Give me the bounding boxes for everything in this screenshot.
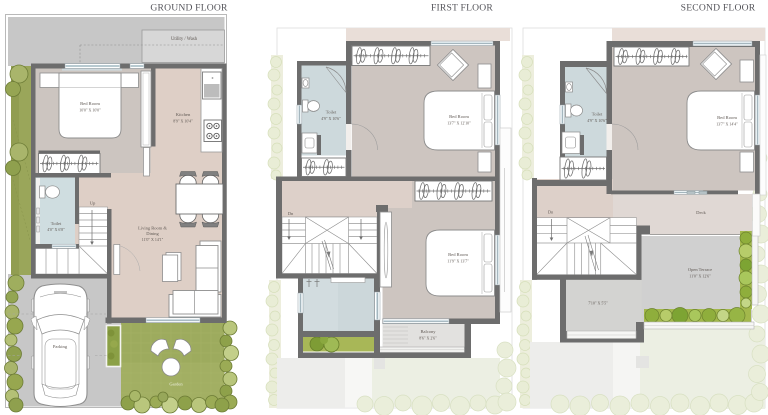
svg-text:GROUND FLOOR: GROUND FLOOR <box>150 3 228 14</box>
svg-text:Balcony: Balcony <box>421 329 437 334</box>
svg-text:Open Terrace: Open Terrace <box>688 267 712 272</box>
svg-text:Kitchen: Kitchen <box>176 112 191 117</box>
svg-text:Garden: Garden <box>169 382 183 387</box>
svg-text:Utility / Wash: Utility / Wash <box>171 37 198 42</box>
svg-text:Dn: Dn <box>288 211 294 216</box>
svg-text:11'9" X 13'7": 11'9" X 13'7" <box>447 259 469 264</box>
svg-text:Toilet: Toilet <box>51 221 62 226</box>
svg-text:Up: Up <box>90 201 96 206</box>
svg-text:7'10" X 5'5": 7'10" X 5'5" <box>588 301 608 306</box>
svg-text:Toilet: Toilet <box>592 112 603 117</box>
svg-text:Bed Room: Bed Room <box>717 115 737 120</box>
svg-text:FIRST FLOOR: FIRST FLOOR <box>431 3 493 14</box>
svg-text:Deck: Deck <box>696 210 706 215</box>
svg-text:Living Room &: Living Room & <box>138 226 167 231</box>
svg-text:SECOND FLOOR: SECOND FLOOR <box>681 3 756 14</box>
svg-text:Dn: Dn <box>548 210 554 215</box>
svg-text:4'0" X 6'8": 4'0" X 6'8" <box>47 227 65 232</box>
svg-text:4'9" X 10'6": 4'9" X 10'6" <box>321 116 341 121</box>
svg-text:Toilet: Toilet <box>326 110 337 115</box>
svg-text:Bed Room: Bed Room <box>448 252 468 257</box>
svg-text:Bed Room: Bed Room <box>80 101 100 106</box>
svg-text:11'0" X 12'6": 11'0" X 12'6" <box>689 274 711 279</box>
svg-text:4'9" X 10'6": 4'9" X 10'6" <box>587 118 607 123</box>
svg-text:Dining: Dining <box>146 231 159 236</box>
svg-text:11'0" X 14'1": 11'0" X 14'1" <box>142 237 164 242</box>
svg-text:10'0" X 10'0": 10'0" X 10'0" <box>79 108 101 113</box>
svg-text:13'7" X 14'4": 13'7" X 14'4" <box>716 122 738 127</box>
svg-text:8'9" X 10'4": 8'9" X 10'4" <box>173 119 193 124</box>
svg-text:Parking: Parking <box>53 344 68 349</box>
svg-text:Bed Room: Bed Room <box>449 114 469 119</box>
svg-text:13'7" X 12'10": 13'7" X 12'10" <box>447 121 471 126</box>
svg-text:8'6" X 2'6": 8'6" X 2'6" <box>419 336 437 341</box>
